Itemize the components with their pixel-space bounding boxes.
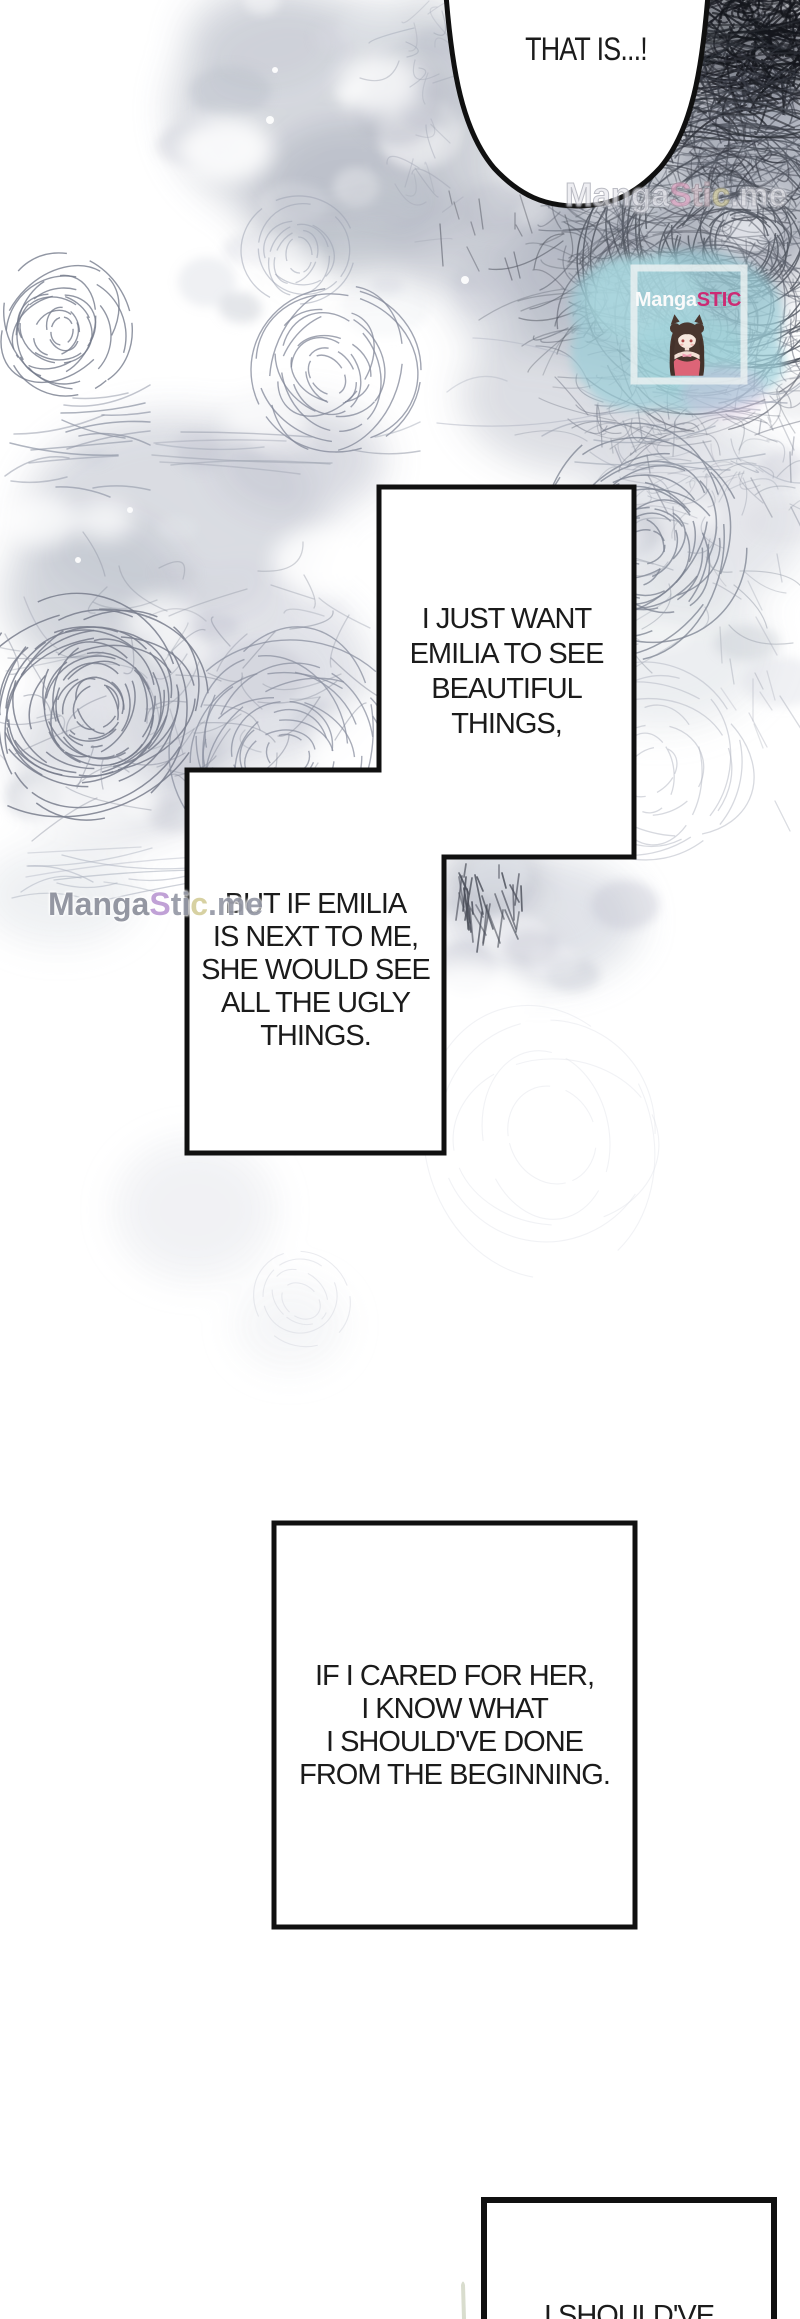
svg-text:MangaSTIC: MangaSTIC [635, 289, 741, 311]
